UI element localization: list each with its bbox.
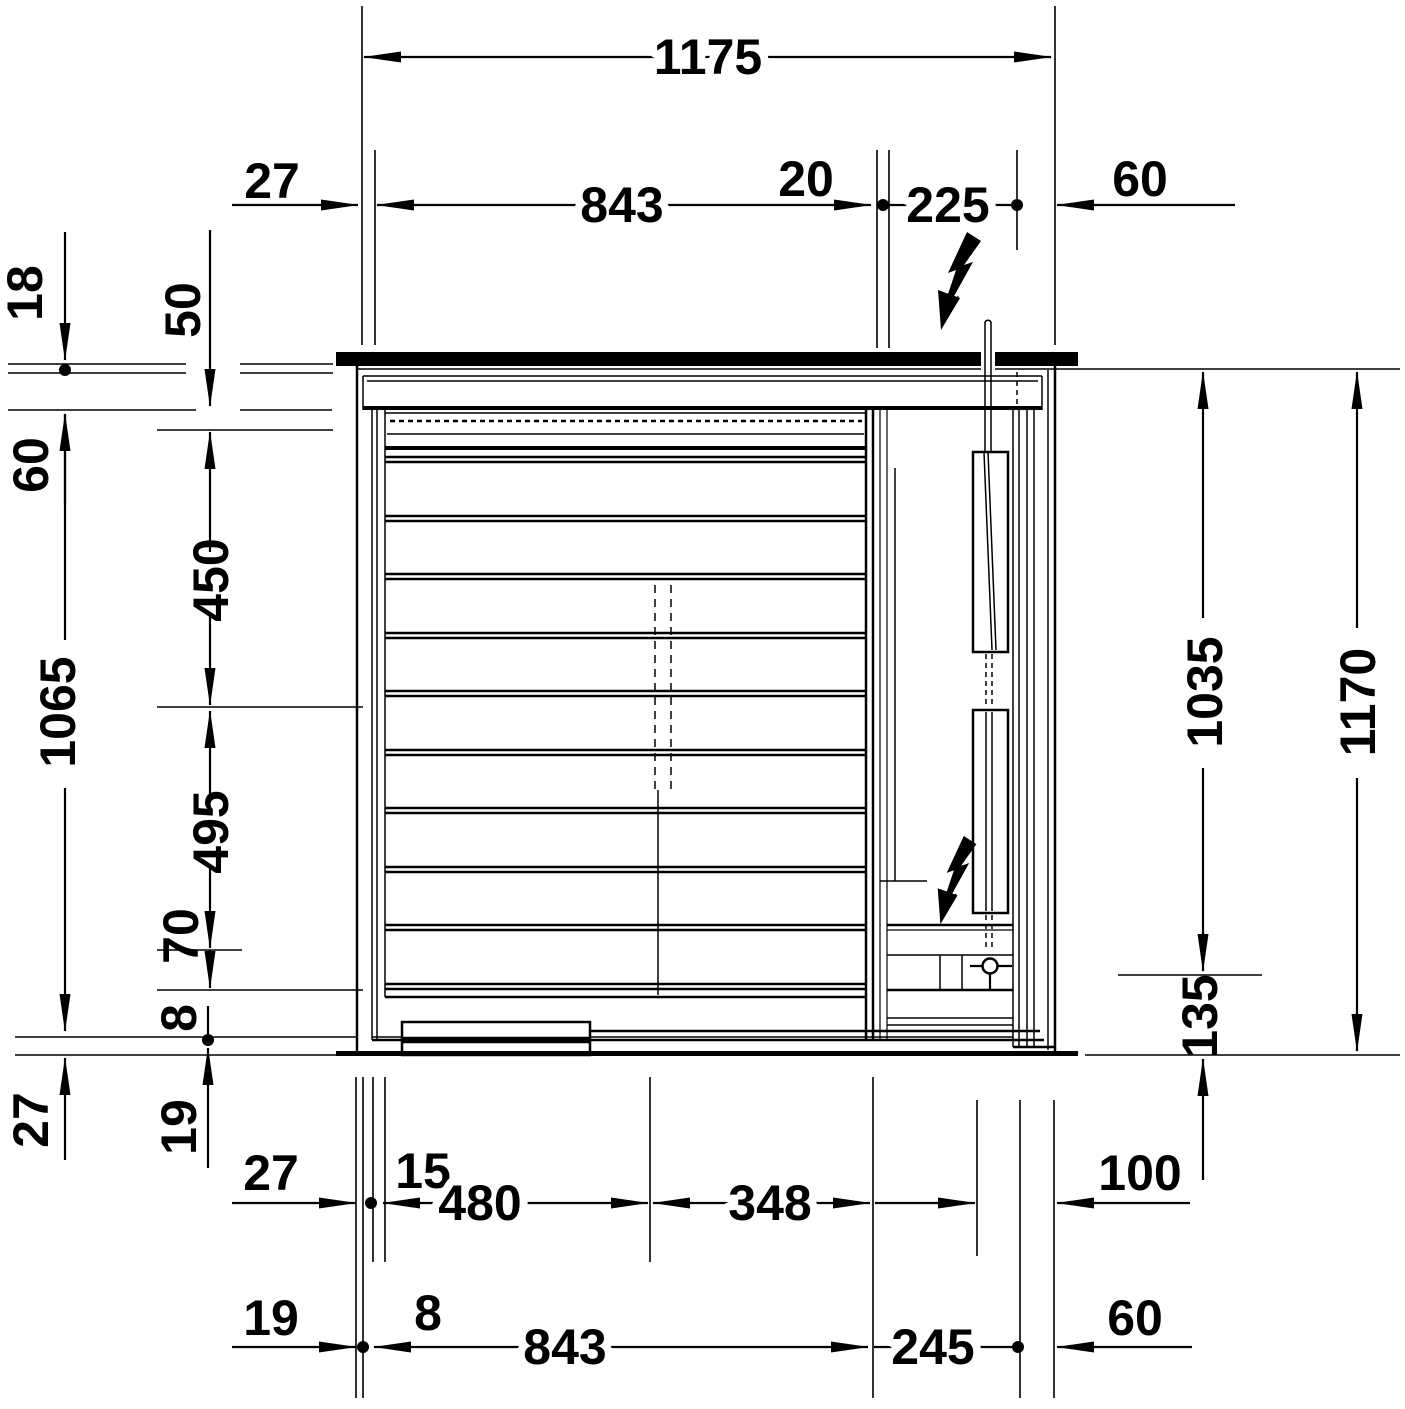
dim-body-height: 1065 <box>30 656 86 767</box>
drawing-page: 1175 27 843 20 225 60 18 60 1065 27 50 4… <box>0 0 1405 1409</box>
handle-rail-upper <box>402 1022 590 1038</box>
dim-console-height: 1035 <box>1177 636 1233 747</box>
vanity-dimension-drawing: 1175 27 843 20 225 60 18 60 1065 27 50 4… <box>0 0 1405 1409</box>
dim-upper-450: 450 <box>183 538 239 621</box>
dim-basin-width: 843 <box>580 177 663 233</box>
dim-apron-50: 50 <box>155 282 211 338</box>
dimensions-left: 18 60 1065 27 50 450 495 70 8 19 <box>0 230 239 1168</box>
power-outlet-icon <box>970 959 1012 991</box>
plinth <box>336 1022 1078 1056</box>
dim-plinth-height: 135 <box>1172 974 1228 1057</box>
lightning-bolt-icon <box>938 836 977 924</box>
base-line <box>336 1051 1078 1056</box>
dim-top-thickness: 18 <box>0 265 53 321</box>
dim-b2-8: 8 <box>414 1285 442 1341</box>
dimensions-right: 1035 135 1170 <box>1172 372 1386 1180</box>
lightning-bolt-icon <box>938 232 981 330</box>
socket-box-partitions <box>940 955 962 990</box>
dim-8: 8 <box>151 1004 207 1032</box>
dim-left-offset: 27 <box>244 153 300 209</box>
countertop <box>336 352 1078 366</box>
dim-b1-100: 100 <box>1098 1145 1181 1201</box>
dim-b2-19: 19 <box>243 1290 299 1346</box>
divider-wall <box>866 410 887 1040</box>
dimensions-bottom: 27 15 480 348 100 19 8 843 245 60 <box>232 1143 1192 1375</box>
roller-front-section <box>385 413 866 997</box>
dim-b2-245: 245 <box>891 1319 974 1375</box>
dim-offset-60: 60 <box>3 437 59 493</box>
hidden-centre-lines <box>655 585 671 790</box>
dim-total-height: 1170 <box>1330 648 1386 756</box>
cabinet-elevation <box>336 232 1400 1056</box>
dim-right-offset: 60 <box>1112 151 1168 207</box>
dim-70: 70 <box>153 908 209 964</box>
top-rail <box>363 376 1042 410</box>
dim-b2-60: 60 <box>1107 1290 1163 1346</box>
left-wall <box>357 366 385 1054</box>
slat-separators <box>385 457 866 989</box>
dim-lower-495: 495 <box>183 790 239 873</box>
dim-b1-348: 348 <box>728 1175 811 1231</box>
dim-19: 19 <box>151 1099 207 1155</box>
dim-bottom-offset-27: 27 <box>3 1092 59 1148</box>
console-compartment <box>880 320 1017 1025</box>
dimensions-top: 1175 27 843 20 225 60 <box>232 29 1235 233</box>
right-wall <box>1013 366 1055 1054</box>
dim-b1-480: 480 <box>438 1175 521 1231</box>
dim-right-span: 225 <box>906 177 989 233</box>
dim-gap: 20 <box>778 151 834 207</box>
dim-b2-843: 843 <box>523 1319 606 1375</box>
dim-total-width: 1175 <box>654 29 762 85</box>
conduit-box-lower <box>973 710 1008 913</box>
dim-b1-27: 27 <box>243 1145 299 1201</box>
